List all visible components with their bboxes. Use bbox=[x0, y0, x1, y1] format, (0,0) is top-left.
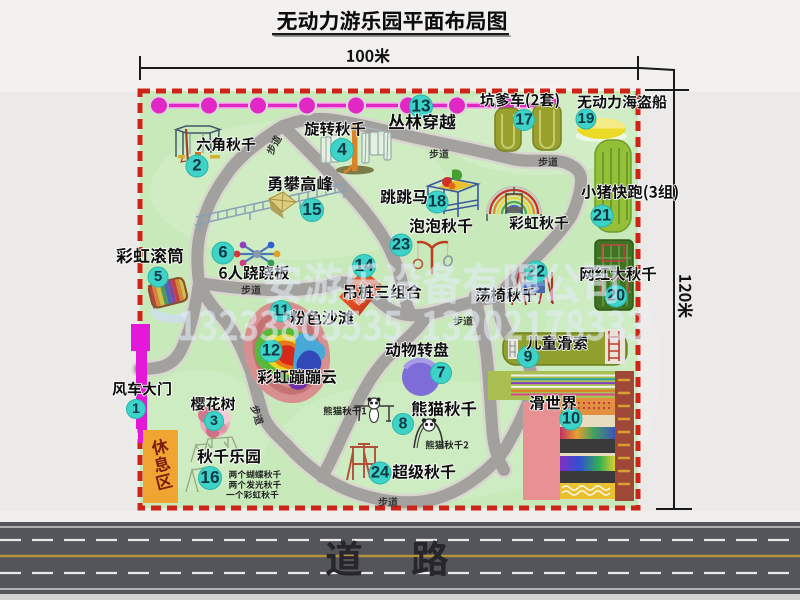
svg-text:10: 10 bbox=[562, 410, 580, 428]
svg-text:3: 3 bbox=[210, 413, 218, 429]
svg-text:7: 7 bbox=[437, 364, 446, 381]
svg-text:16: 16 bbox=[200, 467, 219, 487]
svg-text:15: 15 bbox=[302, 199, 322, 219]
svg-text:21: 21 bbox=[593, 207, 611, 225]
svg-text:18: 18 bbox=[428, 193, 446, 211]
svg-text:6: 6 bbox=[218, 244, 227, 262]
svg-text:2: 2 bbox=[192, 157, 201, 175]
svg-text:5: 5 bbox=[154, 268, 162, 285]
svg-text:12: 12 bbox=[262, 342, 280, 360]
svg-text:13: 13 bbox=[411, 95, 430, 115]
svg-text:9: 9 bbox=[524, 348, 533, 365]
svg-text:19: 19 bbox=[578, 110, 595, 127]
svg-text:8: 8 bbox=[399, 415, 408, 432]
svg-text:23: 23 bbox=[392, 236, 410, 254]
svg-text:24: 24 bbox=[371, 464, 390, 482]
svg-text:17: 17 bbox=[515, 111, 533, 128]
svg-text:4: 4 bbox=[337, 139, 347, 159]
svg-text:1: 1 bbox=[132, 401, 140, 417]
